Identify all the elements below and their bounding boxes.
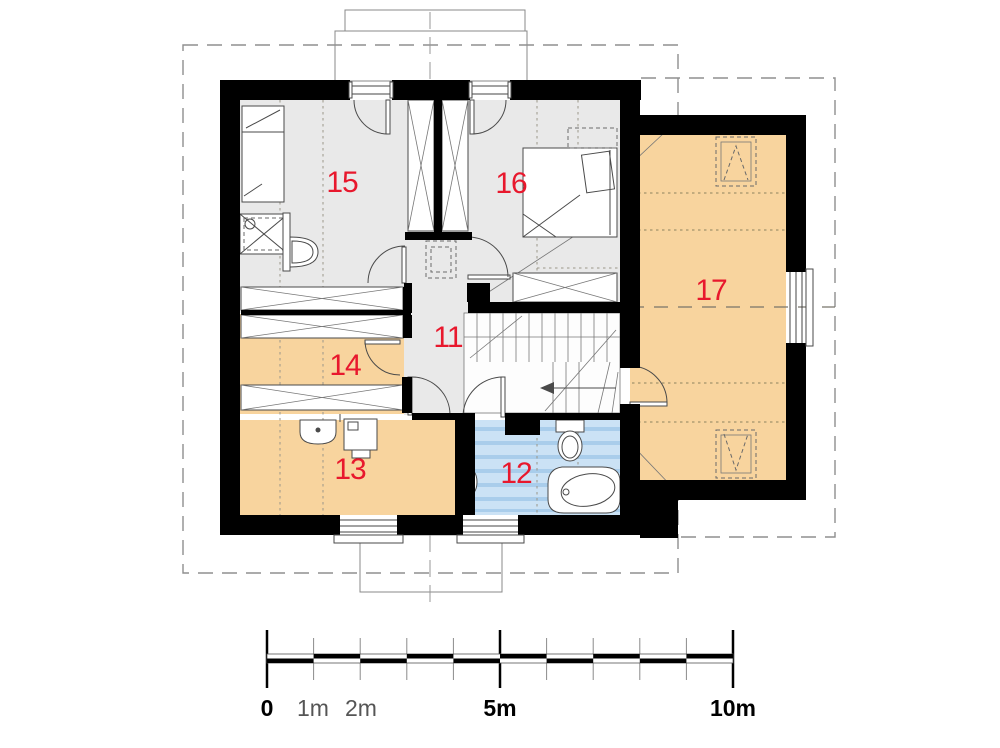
- wardrobe-room14-bottom: [241, 385, 403, 410]
- room-label-14: 14: [329, 349, 361, 382]
- floor-plan-page: 11 12 13 14 15 16 17: [0, 0, 1000, 748]
- staircase: [464, 313, 620, 413]
- washbasin-room13: [300, 414, 340, 444]
- floor-plan-svg: 11 12 13 14 15 16 17: [0, 0, 1000, 748]
- room-label-12: 12: [500, 457, 532, 490]
- scale-label-0: 0: [261, 695, 274, 721]
- dormer-bottom: [360, 535, 502, 592]
- window-right-room17: [790, 269, 813, 346]
- room-label-13: 13: [334, 453, 366, 486]
- toilet-room12: [556, 420, 584, 461]
- room-label-17: 17: [695, 274, 727, 307]
- wardrobe-column-right: [442, 100, 468, 231]
- scale-label-5m: 5m: [483, 695, 516, 721]
- wardrobe-room14-top: [241, 315, 403, 338]
- wardrobe-room16: [513, 273, 617, 302]
- scale-label-10m: 10m: [710, 695, 756, 721]
- window-bottom-room12: [457, 520, 524, 543]
- window-top-left: [349, 82, 393, 98]
- scale-label-1m: 1m: [297, 695, 329, 721]
- bed-room15: [242, 106, 284, 202]
- window-top-right: [469, 82, 511, 98]
- wardrobe-column-left: [408, 100, 434, 231]
- window-bottom-room13: [334, 520, 403, 543]
- room-label-15: 15: [326, 166, 358, 199]
- bathtub-room12: [548, 467, 620, 513]
- room-label-11: 11: [433, 321, 462, 354]
- wardrobe-room15: [241, 287, 403, 310]
- scale-bar: 0 1m 2m 5m 10m: [261, 630, 756, 721]
- scale-label-2m: 2m: [345, 695, 377, 721]
- shower-room15: [240, 214, 288, 254]
- room-label-16: 16: [495, 167, 527, 200]
